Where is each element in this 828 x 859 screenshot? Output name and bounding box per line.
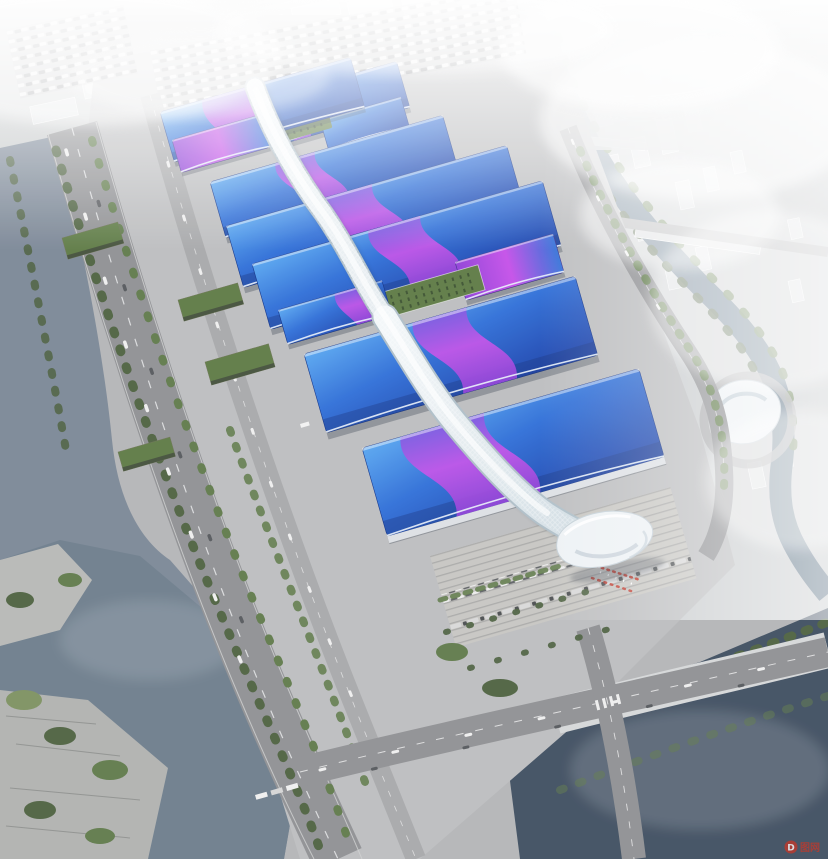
watermark-text: 图网 [800, 842, 820, 854]
fog-overlay [0, 0, 828, 859]
aerial-rendering: D 图网 [0, 0, 828, 859]
watermark-letter: D [787, 844, 794, 854]
watermark: D 图网 [785, 841, 821, 855]
scene-canvas: D 图网 [0, 0, 828, 859]
